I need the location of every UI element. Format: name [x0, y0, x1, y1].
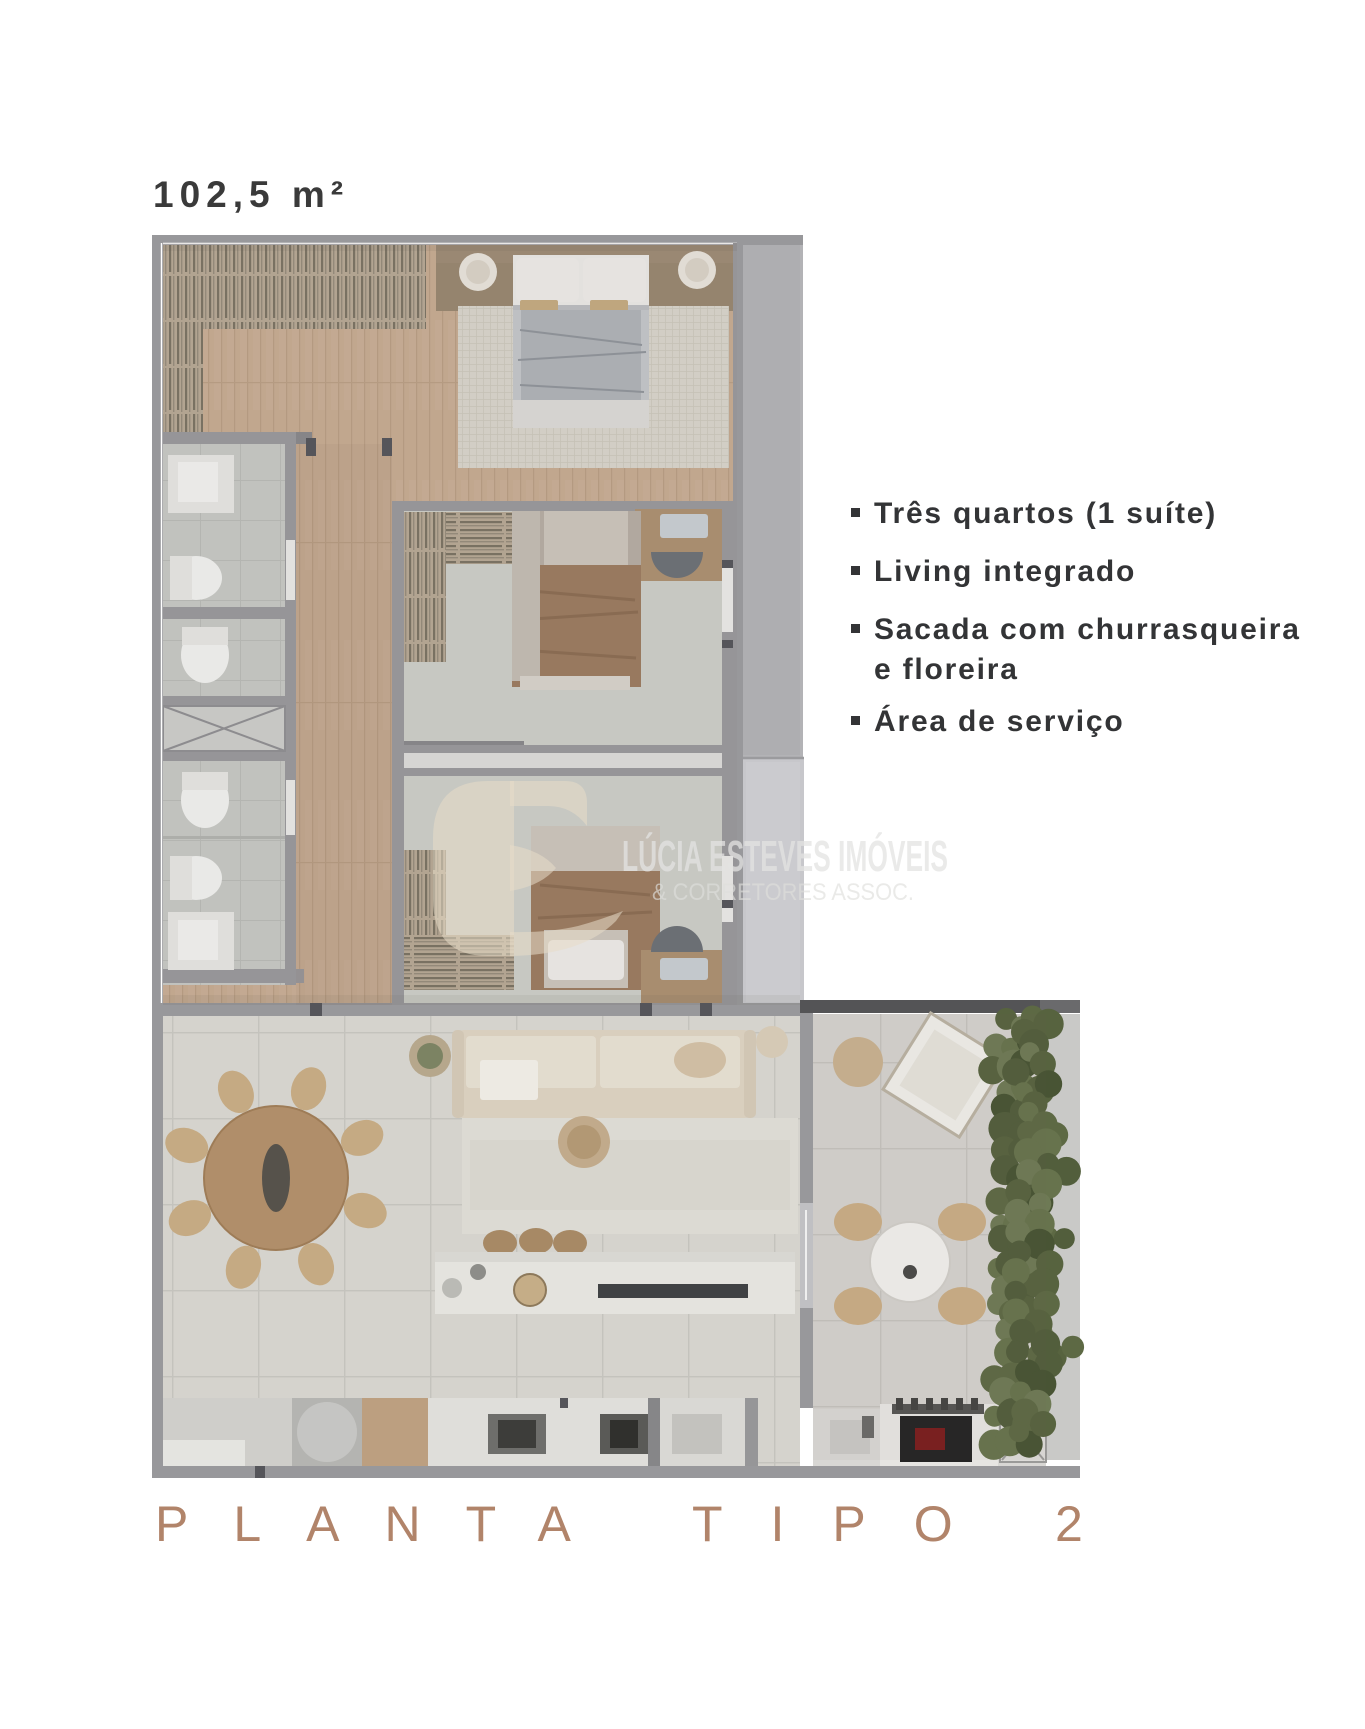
svg-text:LÚCIA ESTEVES IMÓVEIS: LÚCIA ESTEVES IMÓVEIS — [622, 831, 948, 881]
svg-text:& CORRETORES ASSOC.: & CORRETORES ASSOC. — [652, 879, 914, 906]
